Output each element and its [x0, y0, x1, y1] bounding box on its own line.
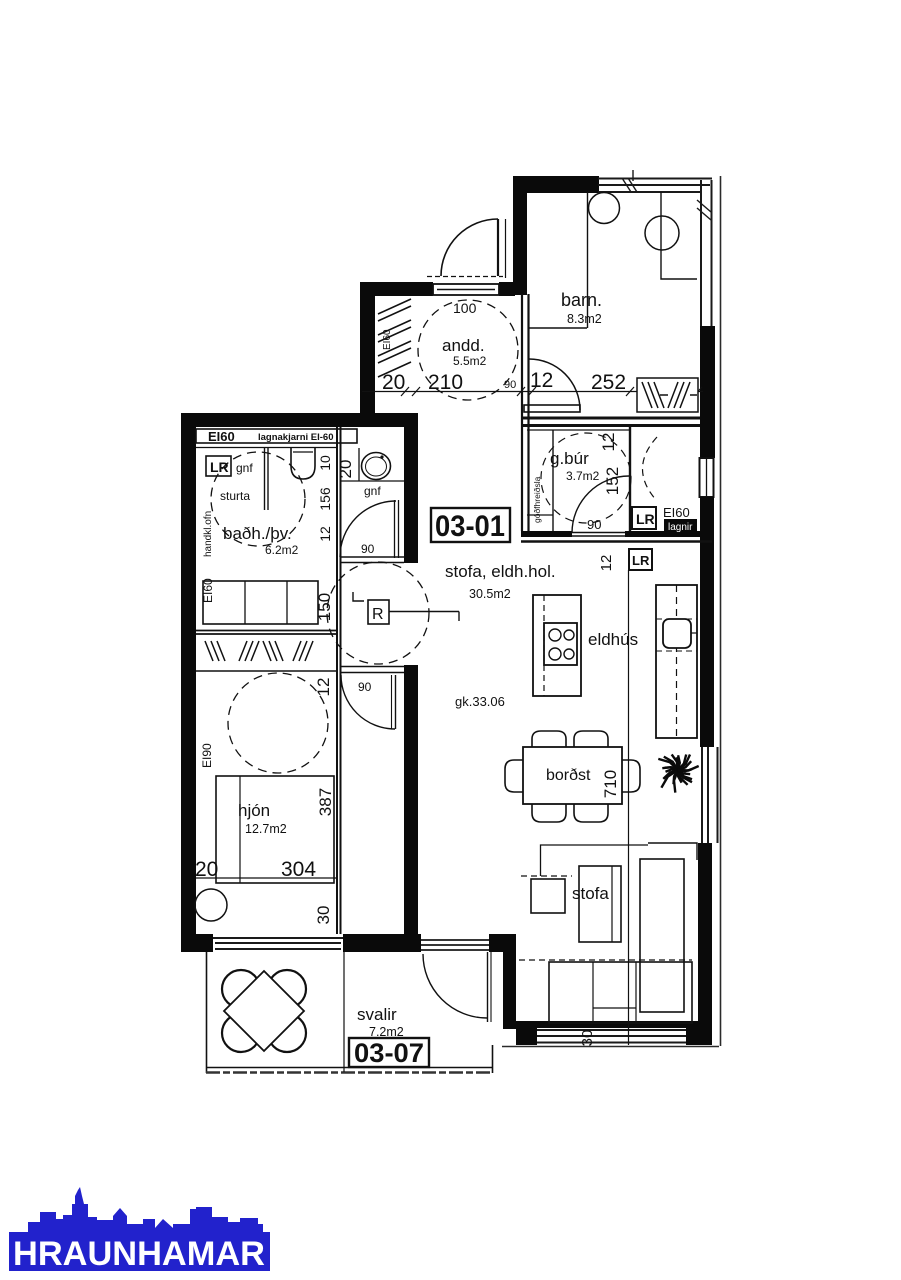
svg-text:andd.: andd.: [442, 336, 485, 355]
svg-text:hjón: hjón: [238, 801, 270, 820]
svg-text:gk.33.06: gk.33.06: [455, 694, 505, 709]
svg-text:sturta: sturta: [220, 489, 250, 503]
svg-text:6.2m2: 6.2m2: [265, 543, 299, 557]
svg-text:góðfhreiðsla: góðfhreiðsla: [532, 476, 542, 523]
svg-text:R: R: [372, 606, 384, 623]
svg-text:EI60: EI60: [201, 578, 215, 603]
svg-text:387: 387: [316, 788, 335, 816]
svg-text:12: 12: [599, 433, 618, 452]
svg-text:borðst: borðst: [546, 767, 591, 784]
svg-text:LR: LR: [210, 459, 229, 475]
svg-text:30.5m2: 30.5m2: [469, 587, 511, 601]
svg-text:eldhús: eldhús: [588, 630, 638, 649]
svg-text:100: 100: [453, 300, 477, 316]
svg-text:svalir: svalir: [357, 1005, 397, 1024]
svg-text:12.7m2: 12.7m2: [245, 822, 287, 836]
svg-text:90: 90: [504, 379, 516, 391]
svg-text:EI60: EI60: [208, 429, 235, 444]
svg-text:90: 90: [361, 542, 375, 556]
svg-text:03-07: 03-07: [354, 1038, 424, 1068]
svg-text:EI60: EI60: [382, 329, 393, 350]
svg-text:lagnakjarni EI-60: lagnakjarni EI-60: [258, 432, 334, 443]
svg-text:stofa, eldh.hol.: stofa, eldh.hol.: [445, 562, 556, 581]
svg-text:8.3m2: 8.3m2: [567, 312, 602, 326]
svg-text:lagnir: lagnir: [668, 522, 693, 533]
svg-text:3.7m2: 3.7m2: [566, 469, 600, 483]
svg-text:252: 252: [591, 371, 626, 394]
svg-text:gnf: gnf: [236, 461, 253, 475]
svg-text:EI90: EI90: [200, 743, 214, 768]
svg-text:152: 152: [603, 467, 622, 495]
svg-text:90: 90: [358, 680, 372, 694]
svg-text:gnf: gnf: [364, 484, 381, 498]
svg-text:210: 210: [428, 371, 463, 394]
svg-text:EI60: EI60: [663, 505, 690, 520]
svg-text:12: 12: [317, 526, 333, 542]
svg-text:handkl.ofn: handkl.ofn: [203, 511, 214, 557]
svg-text:03-01: 03-01: [435, 510, 505, 543]
svg-text:HRAUNHAMAR: HRAUNHAMAR: [13, 1235, 265, 1273]
svg-text:g.búr: g.búr: [550, 449, 589, 468]
svg-text:LR: LR: [632, 553, 650, 568]
svg-text:LR: LR: [636, 511, 655, 527]
svg-text:20: 20: [336, 460, 355, 479]
svg-text:stofa: stofa: [572, 884, 609, 903]
svg-text:baðh./þv.: baðh./þv.: [223, 524, 292, 543]
svg-text:710: 710: [601, 770, 620, 798]
svg-text:12: 12: [530, 369, 553, 392]
svg-text:12: 12: [314, 678, 333, 697]
svg-text:30: 30: [314, 906, 333, 925]
svg-text:12: 12: [598, 555, 615, 572]
svg-text:150: 150: [315, 593, 334, 621]
svg-text:90: 90: [587, 517, 601, 532]
svg-text:5.5m2: 5.5m2: [453, 354, 487, 368]
svg-text:10: 10: [317, 455, 333, 471]
svg-text:20: 20: [382, 371, 405, 394]
svg-text:barn.: barn.: [561, 290, 602, 310]
svg-text:156: 156: [317, 487, 333, 511]
svg-text:30: 30: [579, 1030, 596, 1047]
